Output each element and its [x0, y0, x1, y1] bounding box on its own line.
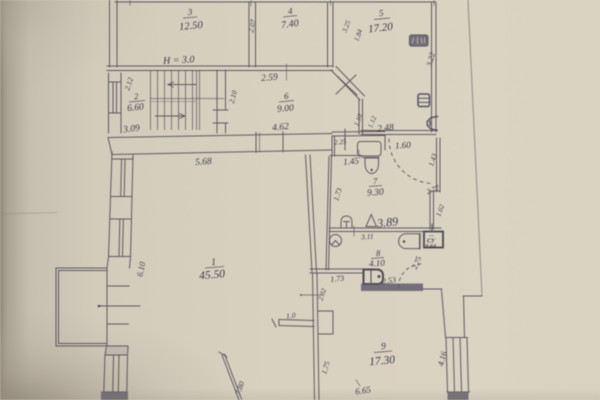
svg-text:7.40: 7.40: [281, 18, 300, 31]
svg-text:Н = 3.0: Н = 3.0: [162, 54, 195, 67]
svg-text:1.73: 1.73: [330, 274, 345, 284]
svg-text:9.00: 9.00: [277, 103, 295, 114]
svg-text:1.0: 1.0: [286, 311, 297, 321]
svg-text:0.64: 0.64: [426, 244, 437, 250]
svg-text:6.60: 6.60: [127, 102, 145, 114]
svg-text:2.59: 2.59: [261, 72, 279, 83]
svg-text:2.25: 2.25: [334, 138, 347, 147]
svg-text:9.30: 9.30: [367, 188, 385, 199]
svg-text:17.30: 17.30: [369, 354, 396, 368]
svg-text:1.60: 1.60: [395, 140, 412, 151]
svg-text:3.11: 3.11: [360, 232, 374, 242]
svg-text:1.45: 1.45: [343, 155, 360, 167]
svg-text:45.50: 45.50: [199, 268, 226, 282]
svg-text:4.10: 4.10: [369, 258, 386, 269]
svg-text:3.89: 3.89: [375, 214, 398, 230]
svg-text:2.48: 2.48: [377, 123, 395, 135]
svg-text:1: 1: [211, 257, 217, 268]
svg-text:4.62: 4.62: [272, 122, 290, 134]
svg-text:5.68: 5.68: [195, 157, 213, 168]
svg-text:12.50: 12.50: [179, 20, 204, 33]
